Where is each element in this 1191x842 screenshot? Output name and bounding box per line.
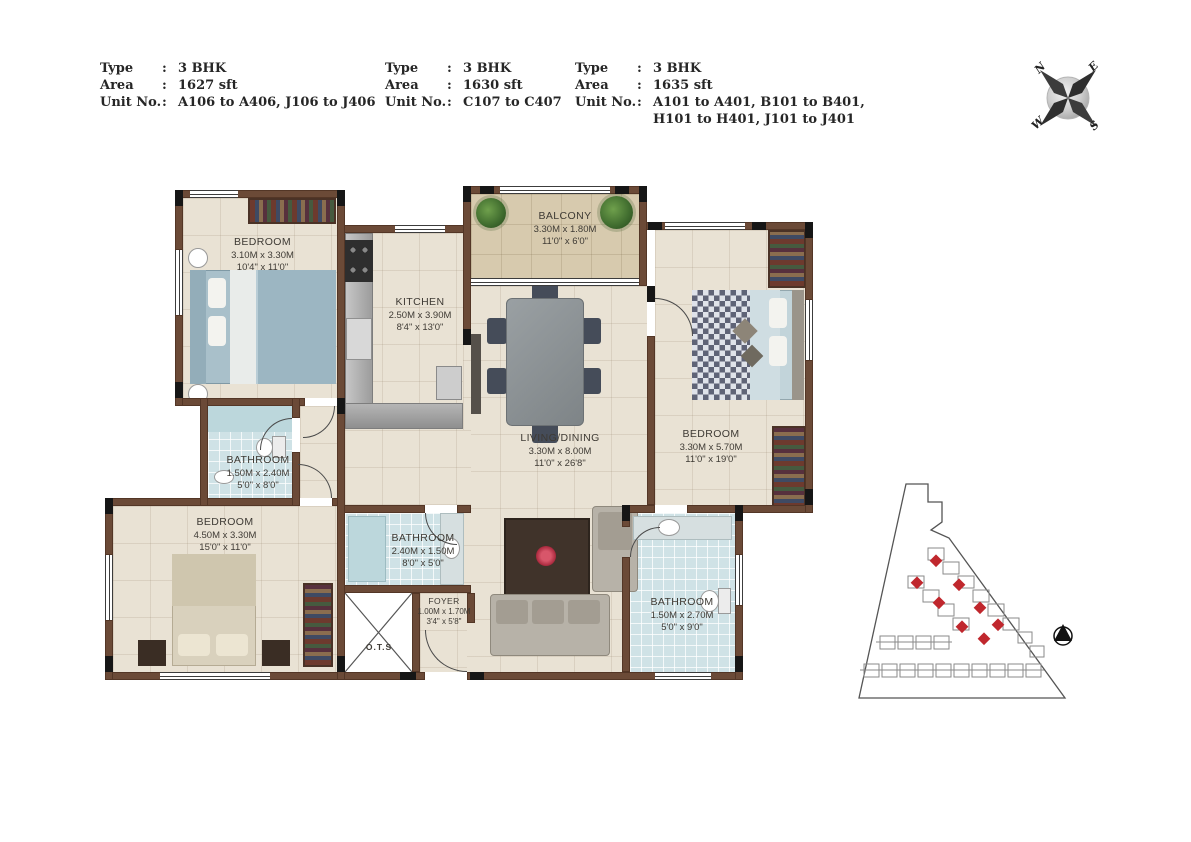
site-highlighted-units bbox=[911, 554, 1005, 645]
spec-block-3: Type:3 BHK Area:1635 sft Unit No.:A101 t… bbox=[575, 60, 865, 128]
dining-chair bbox=[581, 368, 601, 394]
column bbox=[622, 505, 630, 521]
column bbox=[337, 398, 345, 414]
column bbox=[470, 672, 484, 680]
wall bbox=[337, 190, 345, 680]
column bbox=[647, 286, 655, 302]
column bbox=[175, 382, 183, 398]
fridge bbox=[436, 366, 462, 400]
column bbox=[463, 186, 471, 202]
sofa-cushion bbox=[496, 600, 528, 624]
bed-right-headboard bbox=[792, 290, 804, 400]
wardrobe-right-bottom bbox=[772, 426, 806, 510]
wall bbox=[457, 505, 471, 513]
bed-tl-sheet bbox=[230, 270, 256, 384]
site-north-arrow-icon bbox=[1054, 624, 1072, 645]
window bbox=[805, 300, 813, 360]
window bbox=[395, 225, 445, 233]
nightstand bbox=[262, 640, 290, 666]
room-label-bedroom-right: BEDROOM3.30M x 5.70M11'0" x 19'0" bbox=[652, 428, 770, 466]
column bbox=[480, 186, 494, 194]
wall bbox=[647, 336, 655, 505]
spec-block-2: Type:3 BHK Area:1630 sft Unit No.:C107 t… bbox=[385, 60, 562, 111]
compass-rose-icon: N E W S bbox=[1030, 60, 1106, 136]
column bbox=[735, 505, 743, 521]
wardrobe-tl bbox=[248, 198, 336, 224]
room-label-bathroom-br: BATHROOM1.50M x 2.70M5'0" x 9'0" bbox=[628, 596, 736, 634]
site-boundary bbox=[859, 484, 1065, 698]
pillow bbox=[178, 634, 210, 656]
column bbox=[105, 498, 113, 514]
wall bbox=[337, 585, 471, 593]
svg-text:S: S bbox=[1087, 118, 1102, 133]
floor-plan-page: { "legend_blocks": [ {"rows": [ {"label"… bbox=[0, 0, 1191, 842]
bed-tl-blanket bbox=[256, 270, 336, 384]
column bbox=[735, 656, 743, 672]
room-label-bathroom-top: BATHROOM1.50M x 2.40M5'0" x 8'0" bbox=[200, 454, 316, 492]
dining-chair bbox=[581, 318, 601, 344]
spec-label: Area bbox=[100, 77, 162, 94]
bed-right-blanket bbox=[692, 290, 750, 400]
wash-basin bbox=[658, 519, 680, 536]
room-label-foyer: FOYER1.00M x 1.70M3'4" x 5'8" bbox=[406, 596, 482, 628]
column bbox=[337, 190, 345, 206]
kitchen-counter-bottom bbox=[345, 403, 463, 429]
site-key-plan bbox=[832, 478, 1080, 706]
pillow bbox=[208, 316, 226, 346]
dining-table bbox=[506, 298, 584, 426]
window bbox=[190, 190, 238, 198]
column bbox=[805, 489, 813, 505]
room-label-bedroom-bl: BEDROOM4.50M x 3.30M15'0" x 11'0" bbox=[160, 516, 290, 554]
wall bbox=[175, 398, 305, 406]
spec-block-1: Type:3 BHK Area:1627 sft Unit No.:A106 t… bbox=[100, 60, 376, 111]
nightstand bbox=[138, 640, 166, 666]
column bbox=[805, 222, 813, 238]
spec-label: Unit No. bbox=[100, 94, 162, 111]
spec-value: A106 to A406, J106 to J406 bbox=[178, 94, 376, 111]
room-label-kitchen: KITCHEN2.50M x 3.90M8'4" x 13'0" bbox=[364, 296, 476, 334]
wall bbox=[687, 505, 813, 513]
window bbox=[735, 555, 743, 605]
window bbox=[160, 672, 270, 680]
wardrobe-bl bbox=[303, 583, 333, 667]
column bbox=[639, 186, 647, 202]
wall bbox=[292, 398, 300, 418]
room-label-balcony: BALCONY3.30M x 1.80M11'0" x 6'0" bbox=[498, 210, 632, 248]
spec-label: Type bbox=[100, 60, 162, 77]
rug-flower bbox=[536, 546, 556, 566]
window bbox=[175, 250, 183, 315]
sofa-cushion bbox=[532, 600, 564, 624]
hall-mid-floor bbox=[345, 430, 471, 505]
ots-cross bbox=[345, 593, 412, 672]
column bbox=[175, 190, 183, 206]
tv-unit bbox=[471, 334, 481, 414]
svg-text:W: W bbox=[1030, 113, 1048, 132]
wardrobe-right-top bbox=[768, 230, 806, 288]
bed-tl-headboard bbox=[190, 270, 206, 384]
stove bbox=[345, 240, 373, 282]
pillow bbox=[208, 278, 226, 308]
dining-chair bbox=[487, 368, 507, 394]
pillow bbox=[769, 336, 787, 366]
column bbox=[400, 672, 416, 680]
window bbox=[665, 222, 745, 230]
pillow bbox=[769, 298, 787, 328]
window bbox=[500, 186, 610, 194]
column bbox=[615, 186, 629, 194]
column bbox=[105, 656, 113, 672]
balcony-railing bbox=[471, 278, 639, 286]
room-label-bathroom-mid: BATHROOM2.40M x 1.50M8'0" x 5'0" bbox=[367, 532, 479, 570]
dining-chair bbox=[487, 318, 507, 344]
window bbox=[655, 672, 711, 680]
svg-text:E: E bbox=[1085, 60, 1101, 75]
wall bbox=[337, 505, 425, 513]
room-label-ots: O.T.S bbox=[347, 642, 411, 653]
column bbox=[648, 222, 662, 230]
window bbox=[105, 555, 113, 620]
pillow bbox=[216, 634, 248, 656]
column bbox=[752, 222, 766, 230]
column bbox=[337, 656, 345, 672]
room-label-living-dining: LIVING/DINING3.30M x 8.00M11'0" x 26'8" bbox=[495, 432, 625, 470]
room-label-bedroom-tl: BEDROOM3.10M x 3.30M10'4" x 11'0" bbox=[200, 236, 325, 274]
sofa-cushion bbox=[568, 600, 600, 624]
spec-value: 3 BHK bbox=[178, 60, 226, 77]
spec-value: 1627 sft bbox=[178, 77, 238, 94]
bed-bl-blanket bbox=[172, 554, 256, 606]
